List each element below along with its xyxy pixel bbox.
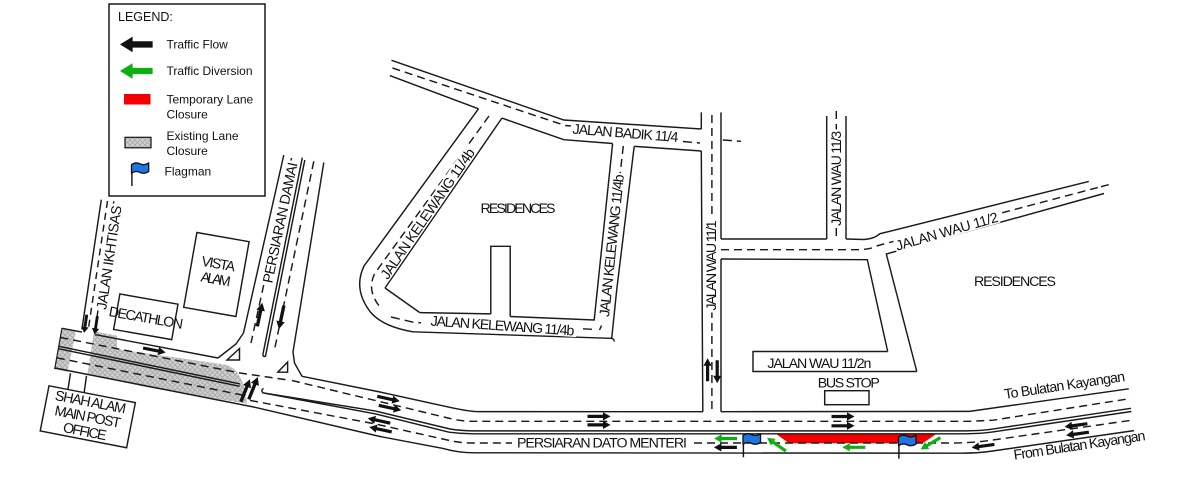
svg-text:JALAN WAU 11/2n: JALAN WAU 11/2n bbox=[767, 356, 871, 372]
svg-text:Existing Lane: Existing Lane bbox=[167, 129, 239, 143]
svg-text:Traffic Flow: Traffic Flow bbox=[167, 38, 229, 52]
svg-text:Flagman: Flagman bbox=[165, 165, 212, 179]
svg-text:Closure: Closure bbox=[167, 144, 209, 158]
svg-text:Temporary Lane: Temporary Lane bbox=[167, 93, 254, 107]
svg-text:Traffic Diversion: Traffic Diversion bbox=[167, 64, 253, 78]
svg-text:RESIDENCES: RESIDENCES bbox=[481, 201, 556, 217]
svg-text:BUS STOP: BUS STOP bbox=[818, 376, 880, 392]
svg-text:LEGEND:: LEGEND: bbox=[118, 10, 173, 24]
svg-text:JALAN WAU 11/3: JALAN WAU 11/3 bbox=[829, 131, 845, 226]
svg-text:RESIDENCES: RESIDENCES bbox=[974, 274, 1056, 290]
svg-text:PERSIARAN DATO MENTERI: PERSIARAN DATO MENTERI bbox=[517, 435, 687, 451]
svg-text:JALAN WAU 11/1: JALAN WAU 11/1 bbox=[704, 220, 720, 310]
svg-text:Closure: Closure bbox=[167, 108, 209, 122]
